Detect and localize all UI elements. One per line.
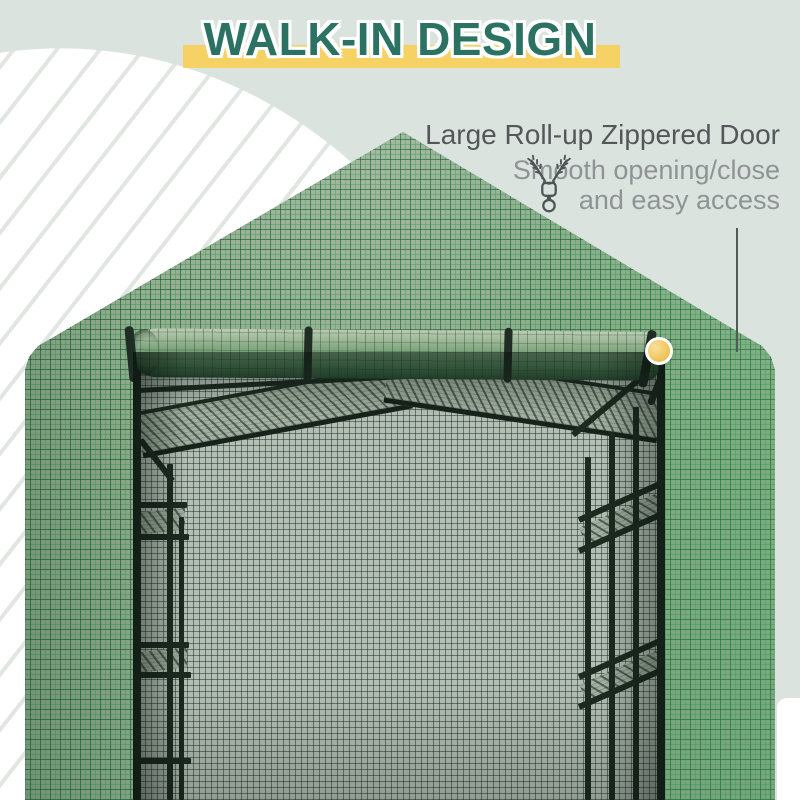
shelf-bar bbox=[135, 534, 189, 540]
frame-pole bbox=[585, 457, 591, 800]
shelf-bar bbox=[135, 642, 189, 648]
feature-title: Large Roll-up Zippered Door bbox=[425, 119, 780, 151]
frame-pole bbox=[657, 352, 665, 800]
callout-line bbox=[736, 228, 738, 352]
frame-pole bbox=[633, 407, 639, 800]
roll-strap bbox=[303, 326, 312, 382]
frame-pole bbox=[167, 464, 173, 800]
decorative-corner bbox=[777, 698, 800, 800]
page-title: WALK-IN DESIGN bbox=[0, 12, 800, 66]
shelf-bar bbox=[135, 758, 191, 764]
product-infographic: WALK-IN DESIGN Large Roll-up Zippered Do… bbox=[0, 0, 800, 800]
door-opening bbox=[133, 352, 665, 800]
shelf-bar bbox=[135, 502, 187, 508]
frame-pole bbox=[133, 352, 141, 800]
zipper-icon bbox=[524, 154, 574, 218]
shelf-bar bbox=[135, 672, 191, 678]
callout-dot bbox=[645, 337, 673, 365]
roll-strap bbox=[503, 328, 512, 383]
rolled-up-door bbox=[131, 328, 659, 381]
frame-pole bbox=[609, 432, 615, 800]
shelf-surface bbox=[137, 507, 185, 534]
